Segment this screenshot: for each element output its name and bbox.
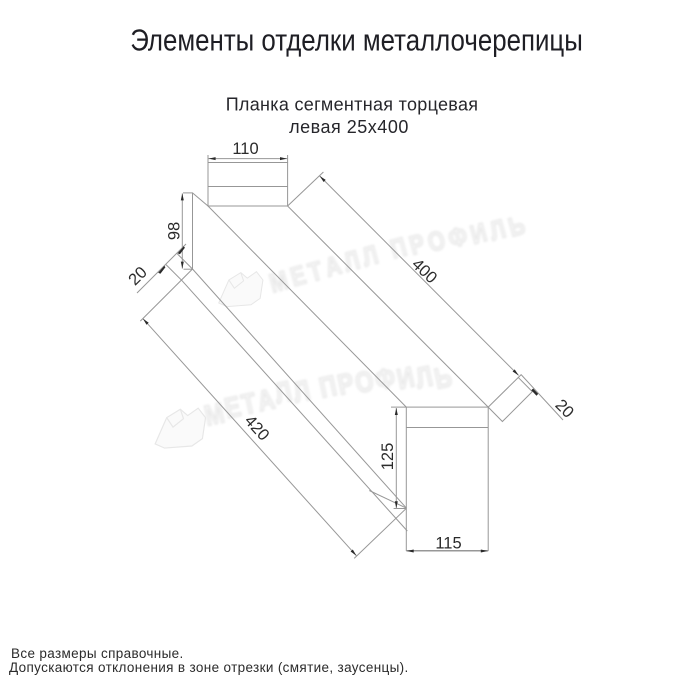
svg-text:115: 115 [435, 534, 461, 552]
svg-text:110: 110 [232, 140, 258, 158]
svg-text:98: 98 [165, 222, 183, 240]
svg-text:125: 125 [379, 443, 397, 471]
svg-text:Допускаются отклонения в зоне: Допускаются отклонения в зоне отрезки (с… [9, 660, 409, 675]
svg-text:левая 25х400: левая 25х400 [289, 117, 409, 137]
svg-text:Планка сегментная торцевая: Планка сегментная торцевая [226, 95, 479, 115]
svg-text:Все размеры справочные.: Все размеры справочные. [11, 646, 184, 661]
svg-text:Элементы отделки металлочерепи: Элементы отделки металлочерепицы [130, 22, 583, 57]
